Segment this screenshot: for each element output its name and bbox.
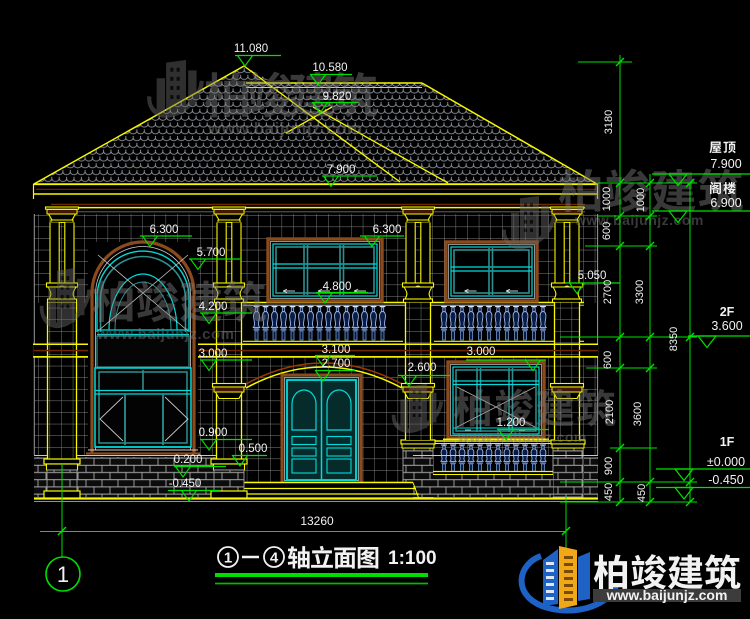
svg-text:6.300: 6.300 <box>373 224 402 236</box>
svg-text:8350: 8350 <box>668 327 680 351</box>
svg-text:3300: 3300 <box>634 280 646 304</box>
svg-text:2.600: 2.600 <box>408 362 437 374</box>
svg-text:450: 450 <box>636 484 648 502</box>
svg-text:7.900: 7.900 <box>710 157 741 171</box>
svg-text:3600: 3600 <box>632 402 644 426</box>
svg-text:3.100: 3.100 <box>322 344 351 356</box>
svg-text:0.900: 0.900 <box>199 427 228 439</box>
svg-text:1: 1 <box>224 550 232 567</box>
svg-text:1: 1 <box>57 562 69 587</box>
svg-text:www.baijunjz.com: www.baijunjz.com <box>606 587 728 603</box>
svg-text:1000: 1000 <box>635 188 647 212</box>
svg-text:www.baijunjz.com: www.baijunjz.com <box>457 429 587 445</box>
svg-text:1F: 1F <box>720 435 735 449</box>
svg-text:13260: 13260 <box>300 514 334 528</box>
svg-text:3.600: 3.600 <box>711 319 742 333</box>
svg-text:9.820: 9.820 <box>323 91 352 103</box>
svg-text:2.700: 2.700 <box>322 358 351 370</box>
svg-text:900: 900 <box>603 457 615 475</box>
svg-text:5.700: 5.700 <box>197 247 226 259</box>
svg-text:11.080: 11.080 <box>234 43 268 55</box>
svg-text:4.200: 4.200 <box>199 301 228 313</box>
svg-text:6.900: 6.900 <box>710 196 741 210</box>
svg-text:www.baijunjz.com: www.baijunjz.com <box>96 326 234 343</box>
svg-text:3180: 3180 <box>603 110 615 134</box>
svg-text:1.200: 1.200 <box>497 417 526 429</box>
svg-text:10.580: 10.580 <box>312 62 347 74</box>
svg-text:2100: 2100 <box>604 400 616 424</box>
svg-text:±0.000: ±0.000 <box>707 455 745 469</box>
svg-text:4.800: 4.800 <box>323 281 352 293</box>
svg-text:0.200: 0.200 <box>174 454 203 466</box>
svg-text:7.900: 7.900 <box>327 164 356 176</box>
svg-text:4: 4 <box>270 550 279 567</box>
svg-text:600: 600 <box>601 222 613 240</box>
svg-text:600: 600 <box>602 351 614 369</box>
svg-text:-0.450: -0.450 <box>708 473 743 487</box>
svg-text:-0.450: -0.450 <box>169 478 202 490</box>
svg-text:3.000: 3.000 <box>199 348 228 360</box>
svg-text:1000: 1000 <box>601 187 613 211</box>
svg-text:1:100: 1:100 <box>388 548 437 569</box>
svg-text:www.baijunjz.com: www.baijunjz.com <box>207 119 363 138</box>
svg-text:6.300: 6.300 <box>150 224 179 236</box>
svg-text:2F: 2F <box>720 305 735 319</box>
svg-text:3.000: 3.000 <box>467 346 496 358</box>
svg-text:0.500: 0.500 <box>239 443 268 455</box>
svg-text:450: 450 <box>603 483 615 501</box>
svg-text:2700: 2700 <box>602 280 614 304</box>
